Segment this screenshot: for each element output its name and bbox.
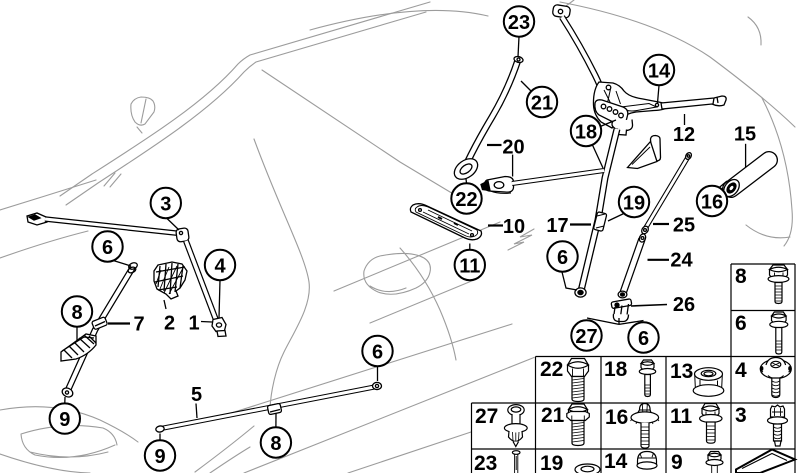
svg-text:27: 27 (475, 405, 498, 428)
svg-text:14: 14 (604, 450, 628, 473)
svg-text:11: 11 (459, 255, 480, 277)
svg-text:10: 10 (503, 216, 525, 238)
svg-text:7: 7 (133, 314, 144, 336)
svg-text:16: 16 (605, 406, 628, 429)
svg-text:6: 6 (102, 237, 113, 259)
svg-text:4: 4 (214, 255, 226, 277)
svg-text:21: 21 (531, 92, 553, 114)
svg-text:1: 1 (188, 313, 199, 335)
svg-text:8: 8 (71, 302, 82, 324)
svg-text:22: 22 (455, 189, 477, 211)
svg-text:9: 9 (154, 446, 165, 468)
svg-text:8: 8 (735, 265, 747, 288)
svg-text:20: 20 (502, 137, 524, 159)
svg-text:13: 13 (670, 360, 693, 383)
svg-text:9: 9 (671, 451, 683, 473)
svg-text:17: 17 (546, 215, 568, 237)
svg-text:3: 3 (160, 193, 171, 215)
svg-text:12: 12 (673, 124, 695, 146)
svg-text:6: 6 (557, 247, 568, 269)
svg-text:3: 3 (735, 404, 747, 427)
svg-text:22: 22 (540, 358, 563, 381)
svg-text:9: 9 (59, 409, 70, 431)
svg-text:6: 6 (735, 312, 747, 335)
svg-text:2: 2 (164, 313, 175, 335)
svg-text:5: 5 (191, 384, 202, 406)
svg-text:18: 18 (575, 121, 597, 143)
svg-text:18: 18 (604, 358, 628, 381)
svg-text:23: 23 (508, 12, 530, 34)
svg-text:15: 15 (734, 124, 756, 146)
svg-text:19: 19 (623, 192, 645, 214)
svg-text:11: 11 (670, 405, 693, 428)
svg-text:25: 25 (673, 215, 695, 237)
svg-text:6: 6 (372, 341, 383, 363)
svg-text:24: 24 (670, 250, 693, 272)
svg-text:27: 27 (575, 326, 597, 348)
svg-text:16: 16 (701, 191, 723, 213)
svg-text:26: 26 (673, 294, 695, 316)
svg-text:19: 19 (540, 452, 563, 473)
svg-text:21: 21 (541, 404, 565, 427)
svg-text:8: 8 (270, 433, 281, 455)
svg-text:14: 14 (648, 60, 671, 82)
svg-text:23: 23 (474, 452, 497, 473)
svg-text:4: 4 (735, 359, 747, 382)
svg-text:6: 6 (638, 328, 649, 350)
